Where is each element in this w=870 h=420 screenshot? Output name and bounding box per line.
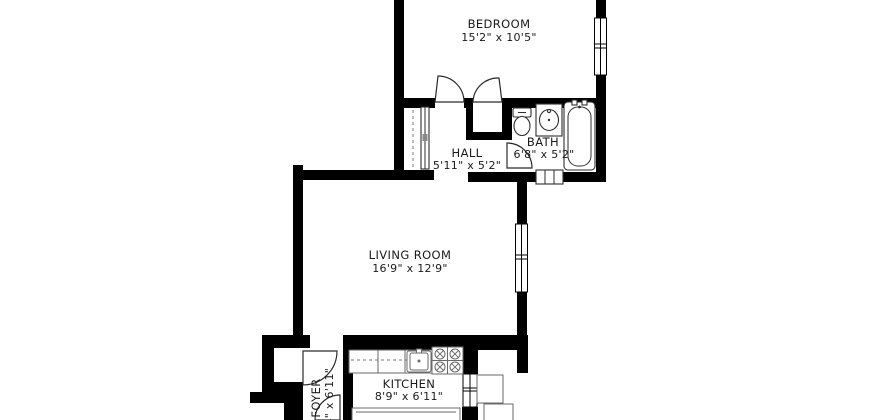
kitchen-window bbox=[463, 374, 477, 407]
door-handle bbox=[423, 134, 428, 141]
wall bbox=[394, 0, 404, 108]
wall bbox=[517, 335, 528, 373]
bedroom-dims: 15'2" x 10'5" bbox=[461, 31, 537, 44]
bedroom-label: BEDROOM bbox=[468, 17, 531, 31]
kitchen-label: KITCHEN bbox=[383, 377, 436, 391]
toilet bbox=[513, 108, 531, 136]
foyer-label: FOYER bbox=[309, 378, 323, 417]
wall bbox=[462, 347, 478, 374]
floor-plan-drawing: BEDROOM 15'2" x 10'5" HALL 5'11" x 5'2" … bbox=[0, 0, 870, 420]
radiator bbox=[536, 170, 563, 184]
living-room-window bbox=[516, 224, 528, 292]
kitchen-dims: 8'9" x 6'11" bbox=[375, 390, 443, 403]
wall bbox=[293, 382, 303, 420]
kitchen-island bbox=[352, 408, 460, 420]
kitchen-sink bbox=[407, 349, 431, 372]
hall-label: HALL bbox=[452, 146, 483, 160]
hall-closet bbox=[413, 107, 429, 169]
bath-dims: 6'8" x 5'2" bbox=[514, 148, 575, 161]
floor-plan: BEDROOM 15'2" x 10'5" HALL 5'11" x 5'2" … bbox=[0, 0, 870, 420]
bedroom-window bbox=[595, 18, 607, 75]
wall bbox=[250, 392, 296, 403]
wall bbox=[462, 407, 478, 420]
wall bbox=[293, 165, 303, 348]
bedroom-closet-door-swing bbox=[473, 78, 502, 102]
bath-label: BATH bbox=[527, 135, 559, 149]
wall bbox=[394, 98, 404, 180]
bath-sink bbox=[536, 104, 562, 136]
wall bbox=[293, 170, 434, 180]
wall bbox=[466, 132, 512, 140]
living-room-dims: 16'9" x 12'9" bbox=[372, 262, 448, 275]
wall bbox=[596, 0, 606, 19]
foyer-dims: 3'4" x 6'11" bbox=[323, 368, 336, 420]
living-room-label: LIVING ROOM bbox=[369, 248, 452, 262]
nook-counter bbox=[477, 375, 513, 420]
wall bbox=[517, 172, 527, 225]
wall bbox=[464, 98, 473, 108]
hall-dims: 5'11" x 5'2" bbox=[433, 159, 501, 172]
bedroom-door-swing bbox=[435, 76, 464, 102]
wall bbox=[596, 74, 606, 182]
stove bbox=[432, 347, 463, 374]
